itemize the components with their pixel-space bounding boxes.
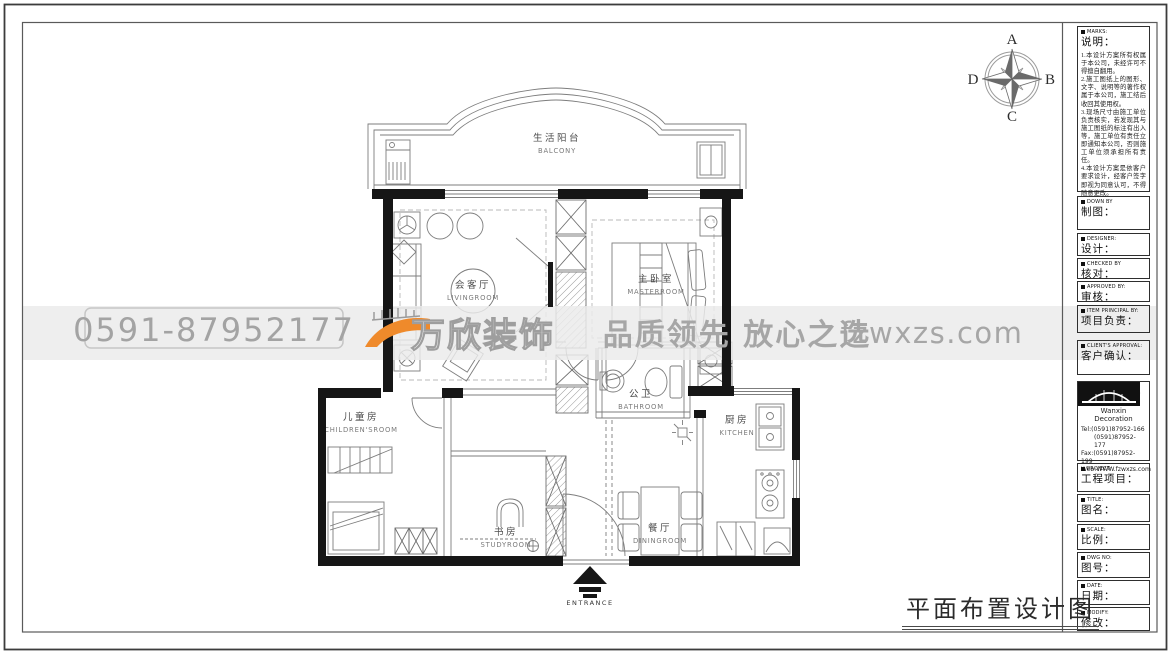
bullet-square-icon: [1081, 467, 1085, 471]
drawn-by-field: DOWN BY 制图：: [1077, 196, 1150, 230]
principal-label-en: ITEM PRINCIPAL BY:: [1087, 308, 1139, 314]
washing-machine: [386, 140, 410, 184]
project-field: PROJECT: 工程项目：: [1077, 463, 1150, 492]
compass-north-label: A: [1007, 32, 1018, 48]
kitchen-fixtures: [717, 404, 790, 556]
designer-field: DESIGNER: 设计：: [1077, 233, 1150, 256]
children-label-cn: 儿童房: [343, 411, 379, 423]
principal-field: ITEM PRINCIPAL BY: 项目负责：: [1077, 305, 1150, 333]
watermark-site: fzwxzs.com: [841, 316, 1024, 350]
bathroom-label-en: BATHROOM: [618, 403, 664, 411]
watermark-brand: 万欣装饰: [411, 316, 555, 356]
notes-label-cn: 说明：: [1081, 37, 1146, 49]
study-label-en: STUDYROOM: [481, 541, 532, 549]
company-bridge-logo: [1078, 382, 1140, 406]
scale-label-en: SCALE:: [1087, 527, 1106, 533]
interior-walls: [444, 342, 722, 556]
floor-plan-canvas: 生活阳台 BALCONY 会客厅 LIVINGROOM 主卧室 MASTERRO…: [0, 0, 1171, 654]
checked-by-label-cn: 核对：: [1081, 269, 1146, 281]
children-room-furniture: [328, 447, 392, 554]
bullet-square-icon: [1081, 344, 1085, 348]
drawing-title: 平面布置设计图: [902, 589, 1099, 630]
compass-south-label: C: [1007, 109, 1017, 125]
watermark-phone: 0591-87952177: [73, 311, 355, 349]
checked-by-field: CHECKED BY 核对：: [1077, 258, 1150, 279]
dining-label-cn: 餐厅: [648, 522, 672, 534]
dining-label-en: DININGROOM: [633, 537, 687, 545]
notes-body: 1.本设计方案所有权属于本公司，未经许可不得擅自翻用。 2.施工图纸上的图形、文…: [1081, 52, 1146, 198]
company-block: 万欣装饰 Wanxin Decoration Tel:(0591)87952-1…: [1077, 381, 1150, 461]
watermark-layer: 0591-87952177 万欣装饰 品质领先 放心之选 fzwxzs.com: [73, 308, 1023, 356]
bullet-square-icon: [1081, 30, 1085, 34]
title-field: TITLE: 图名：: [1077, 494, 1150, 522]
bullet-square-icon: [1081, 584, 1085, 588]
checked-by-label-en: CHECKED BY: [1087, 261, 1121, 267]
drawn-by-label-cn: 制图：: [1081, 207, 1146, 219]
bathroom-label-cn: 公卫: [629, 389, 653, 400]
client-approval-label-cn: 客户确认：: [1081, 351, 1146, 363]
approved-by-field: APPROVED BY: 审核：: [1077, 281, 1150, 302]
bullet-square-icon: [1081, 262, 1085, 266]
client-approval-label-en: CLIENT'S APPROVAL:: [1087, 343, 1142, 349]
compass-west-label: D: [968, 72, 979, 88]
title-label-en: TITLE:: [1087, 497, 1103, 503]
bullet-square-icon: [1081, 498, 1085, 502]
designer-label-cn: 设计：: [1081, 244, 1146, 256]
project-label-en: PROJECT:: [1087, 466, 1111, 472]
approved-by-label-en: APPROVED BY:: [1087, 284, 1125, 290]
watermark-slogan: 品质领先 放心之选: [603, 318, 871, 353]
children-label-en: CHILDREN'SROOM: [324, 426, 398, 434]
company-name-en: Wanxin Decoration: [1081, 407, 1146, 423]
bullet-square-icon: [1081, 528, 1085, 532]
entrance-arrow: ENTRANCE: [566, 566, 613, 607]
notes-label-en: MARKS:: [1087, 29, 1108, 35]
title-label-cn: 图名：: [1081, 505, 1146, 517]
company-tel2: (0591)87952-177: [1081, 434, 1146, 450]
entrance-label: ENTRANCE: [566, 599, 613, 607]
drawn-by-label-en: DOWN BY: [1087, 199, 1113, 205]
titleblock-notes: MARKS: 说明： 1.本设计方案所有权属于本公司，未经许可不得擅自翻用。 2…: [1077, 26, 1150, 192]
balcony-cabinet: [697, 142, 725, 178]
designer-label-en: DESIGNER:: [1087, 236, 1116, 242]
bullet-square-icon: [1081, 237, 1085, 241]
compass-rose: A B C D: [968, 32, 1055, 125]
living-label-en: LIVINGROOM: [447, 294, 499, 302]
bullet-square-icon: [1081, 309, 1085, 313]
balcony-label-cn: 生活阳台: [533, 132, 581, 144]
master-label-en: MASTERROOM: [627, 288, 684, 296]
dwg-no-label-cn: 图号：: [1081, 563, 1146, 575]
balcony-label-en: BALCONY: [538, 147, 576, 155]
company-tel1: Tel:(0591)87952-166: [1081, 426, 1146, 434]
kitchen-label-en: KITCHEN: [719, 429, 754, 437]
principal-label-cn: 项目负责：: [1081, 316, 1146, 328]
scale-field: SCALE: 比例：: [1077, 524, 1150, 550]
bullet-square-icon: [1081, 285, 1085, 289]
dwg-no-label-en: DWG NO:: [1087, 555, 1112, 561]
client-approval-field: CLIENT'S APPROVAL: 客户确认：: [1077, 340, 1150, 375]
scale-label-cn: 比例：: [1081, 535, 1146, 547]
kitchen-label-cn: 厨房: [725, 414, 749, 426]
hall-lines: [606, 420, 693, 556]
bullet-square-icon: [1081, 556, 1085, 560]
approved-by-label-cn: 审核：: [1081, 292, 1146, 304]
bullet-square-icon: [1081, 200, 1085, 204]
dwg-no-field: DWG NO: 图号：: [1077, 552, 1150, 578]
project-label-cn: 工程项目：: [1081, 474, 1146, 486]
living-label-cn: 会客厅: [455, 279, 491, 291]
study-label-cn: 书房: [494, 526, 518, 538]
compass-east-label: B: [1045, 72, 1055, 88]
master-label-cn: 主卧室: [638, 273, 674, 285]
drawing-sheet: 生活阳台 BALCONY 会客厅 LIVINGROOM 主卧室 MASTERRO…: [0, 0, 1171, 654]
